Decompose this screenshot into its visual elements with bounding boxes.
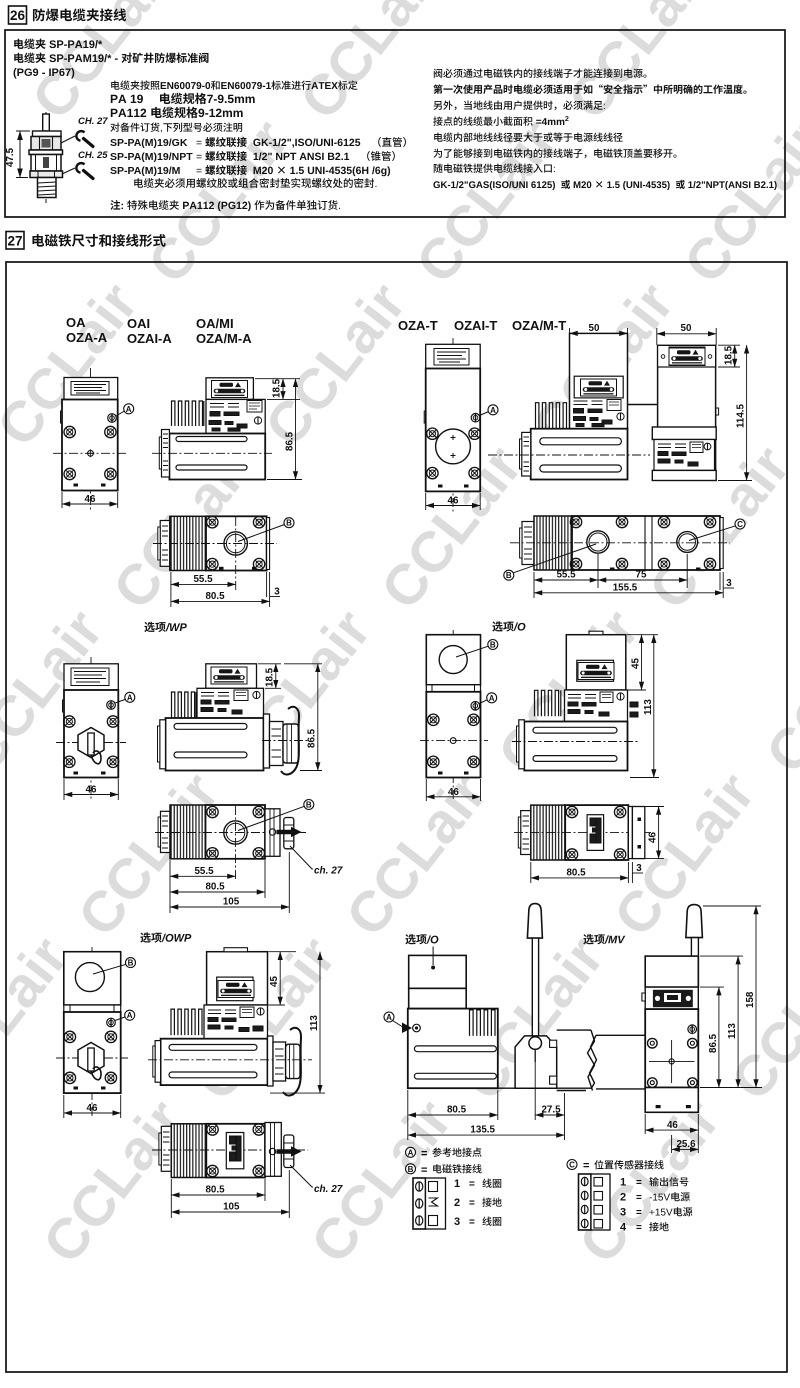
svg-text:CH. 27: CH. 27 [78, 116, 108, 127]
svg-text:3: 3 [726, 578, 732, 589]
svg-text:55.5: 55.5 [194, 866, 214, 877]
svg-text:45: 45 [269, 976, 280, 987]
svg-text:B: B [306, 801, 312, 810]
svg-text:A: A [386, 1013, 392, 1022]
svg-text:105: 105 [223, 1202, 240, 1213]
svg-text:4: 4 [620, 1222, 627, 1234]
svg-text:B: B [506, 571, 512, 580]
svg-text:SP-PA(M)19/M: SP-PA(M)19/M [110, 165, 181, 177]
svg-text:OZA-A: OZA-A [66, 330, 108, 345]
svg-text:18.5: 18.5 [724, 345, 735, 365]
svg-text:80.5: 80.5 [205, 882, 225, 893]
svg-text:=: = [636, 1178, 642, 1189]
svg-text:27: 27 [7, 234, 22, 249]
svg-text:25.6: 25.6 [676, 1139, 696, 1150]
svg-text:A: A [408, 1148, 414, 1157]
svg-text:113: 113 [727, 1023, 738, 1039]
svg-text:OZA/M-T: OZA/M-T [512, 318, 566, 333]
svg-text:80.5: 80.5 [205, 591, 225, 602]
svg-text:SP-PA(M)19/GK: SP-PA(M)19/GK [110, 137, 188, 149]
svg-text:A: A [489, 694, 495, 703]
svg-text:OA: OA [66, 315, 86, 330]
svg-text:45: 45 [631, 658, 642, 669]
svg-text:B: B [128, 959, 134, 968]
svg-text:(PG9 - IP67): (PG9 - IP67) [13, 67, 75, 79]
svg-text:CH. 25: CH. 25 [78, 150, 108, 161]
svg-text:86.5: 86.5 [307, 728, 318, 748]
svg-text:86.5: 86.5 [708, 1033, 719, 1053]
svg-text:=: = [469, 1217, 475, 1228]
svg-text:46: 46 [648, 832, 659, 843]
svg-text:50: 50 [681, 323, 692, 334]
svg-text:27.5: 27.5 [541, 1105, 561, 1116]
svg-text:2: 2 [620, 1192, 626, 1204]
svg-text:3: 3 [454, 1216, 460, 1228]
svg-text:A: A [126, 405, 132, 414]
svg-text:135.5: 135.5 [470, 1125, 495, 1136]
svg-text:46: 46 [448, 787, 459, 798]
svg-text:50: 50 [589, 323, 600, 334]
svg-text:114.5: 114.5 [736, 403, 747, 428]
svg-text:C: C [737, 520, 743, 529]
svg-text:113: 113 [309, 1015, 320, 1031]
svg-text:26: 26 [10, 8, 26, 23]
svg-text:C: C [569, 1161, 575, 1170]
svg-text:OZA-T: OZA-T [398, 318, 438, 333]
svg-text:46: 46 [448, 496, 459, 507]
svg-text:=: = [469, 1198, 475, 1209]
svg-text:3: 3 [620, 1207, 626, 1219]
svg-text:OZAI-A: OZAI-A [127, 331, 172, 346]
svg-text:55.5: 55.5 [556, 570, 576, 581]
svg-text:46: 46 [85, 494, 96, 505]
svg-text:80.5: 80.5 [566, 868, 586, 879]
svg-text:80.5: 80.5 [205, 1185, 225, 1196]
svg-text:55.5: 55.5 [193, 574, 213, 585]
svg-text:A: A [127, 1011, 133, 1020]
svg-text:2: 2 [454, 1197, 460, 1209]
svg-text:ch. 27: ch. 27 [314, 866, 343, 877]
svg-text:=: = [421, 1148, 427, 1160]
svg-text:OZA/M-A: OZA/M-A [196, 331, 252, 346]
svg-text:=: = [469, 1179, 475, 1190]
svg-text:3: 3 [636, 863, 642, 874]
svg-text:1: 1 [454, 1178, 460, 1190]
svg-text:86.5: 86.5 [285, 431, 296, 451]
svg-text:=: = [421, 1164, 427, 1176]
svg-text:OA/MI: OA/MI [196, 316, 234, 331]
svg-text:46: 46 [667, 1120, 678, 1131]
svg-text:105: 105 [223, 897, 240, 908]
svg-text:B: B [286, 519, 292, 528]
svg-text:B: B [490, 641, 496, 650]
svg-text:3: 3 [274, 587, 280, 598]
svg-text:OAI: OAI [127, 316, 150, 331]
svg-text:155.5: 155.5 [613, 583, 638, 594]
svg-text:B: B [408, 1165, 414, 1174]
svg-text:113: 113 [643, 699, 654, 715]
svg-text:=: = [636, 1193, 642, 1204]
svg-text:18.5: 18.5 [272, 378, 283, 398]
svg-text:OZAI-T: OZAI-T [454, 318, 497, 333]
svg-text:=: = [583, 1160, 589, 1172]
svg-text:ch. 27: ch. 27 [314, 1184, 343, 1195]
svg-text:1: 1 [620, 1177, 626, 1189]
svg-text:46: 46 [86, 785, 97, 796]
svg-text:158: 158 [745, 991, 756, 1008]
svg-text:46: 46 [87, 1103, 98, 1114]
svg-text:75: 75 [636, 570, 647, 581]
svg-text:=: = [636, 1223, 642, 1234]
svg-text:A: A [127, 693, 133, 702]
svg-text:80.5: 80.5 [447, 1105, 467, 1116]
svg-text:18.5: 18.5 [265, 667, 276, 687]
svg-text:SP-PA(M)19/NPT: SP-PA(M)19/NPT [110, 151, 193, 163]
svg-text:=: = [636, 1208, 642, 1219]
svg-text:A: A [490, 406, 496, 415]
svg-text:47.5: 47.5 [5, 147, 16, 167]
